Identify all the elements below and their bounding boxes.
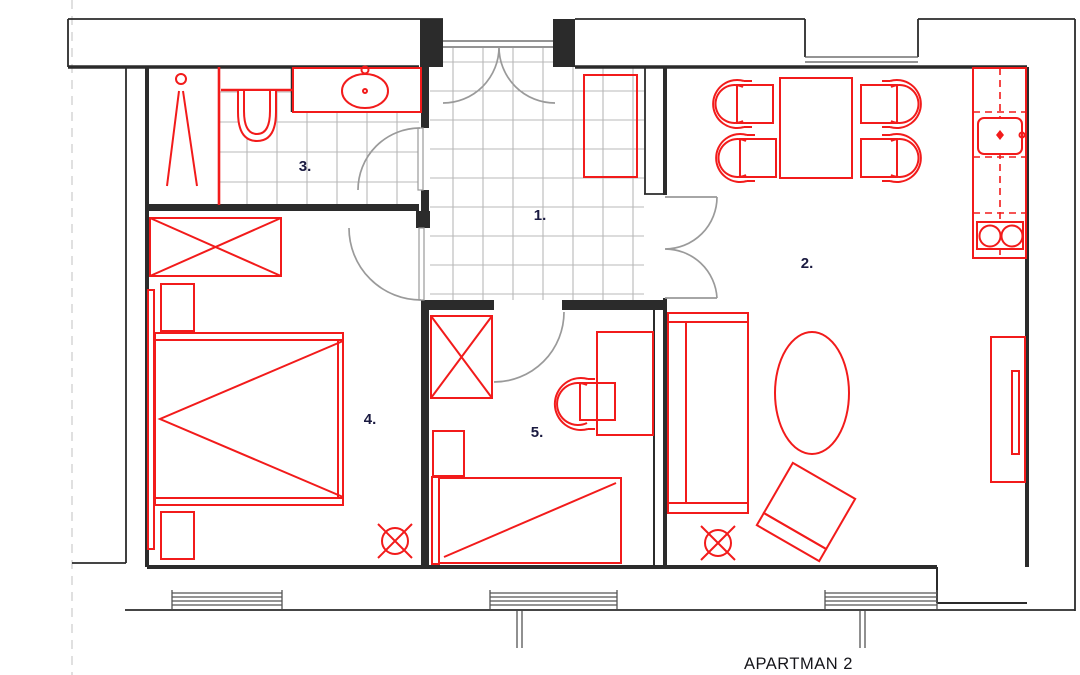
interior-walls	[147, 67, 665, 567]
dining-chair-icon	[861, 80, 921, 128]
double-bed-icon	[155, 333, 343, 505]
nightstand	[433, 431, 464, 476]
room-label-bedroom: 4.	[364, 411, 377, 428]
entry-pier-right	[553, 19, 575, 67]
tv-cabinet-icon	[991, 337, 1025, 482]
kitchen-counter	[973, 68, 1026, 258]
entry-pier-left	[420, 19, 443, 67]
bedroom-smallroom-wall	[421, 300, 429, 567]
stove-icon	[977, 222, 1023, 249]
shower-icon	[167, 74, 197, 186]
nightstand	[161, 284, 194, 331]
coffee-table-icon	[775, 332, 849, 454]
window-living-room	[825, 590, 937, 609]
hall-furniture	[584, 75, 637, 177]
dining-chair-icon	[861, 134, 921, 182]
wardrobe-icon	[150, 218, 281, 276]
room-label-living-room: 2.	[801, 255, 814, 272]
hall-living-wall	[644, 67, 665, 194]
hall-smallroom-wall-right	[562, 300, 664, 310]
sofa-icon	[668, 313, 748, 513]
ceiling-light-icon	[378, 524, 412, 558]
desk-chair-icon	[555, 378, 615, 430]
bathroom-fixtures	[167, 67, 421, 206]
bathroom-door-swing	[358, 128, 423, 190]
toilet-icon	[238, 90, 276, 141]
bathroom-bottom-wall	[147, 204, 419, 211]
top-window	[805, 57, 918, 62]
hall-tile-grid	[430, 48, 644, 300]
wall-step	[416, 211, 430, 228]
hall-bathroom-wall	[421, 67, 429, 128]
armchair-icon	[757, 463, 855, 561]
entrance-door-swing	[443, 47, 555, 103]
sink-icon	[978, 118, 1025, 154]
room-label-bathroom: 3.	[299, 158, 312, 175]
washbasin-icon	[293, 67, 421, 113]
room-label-small-room: 5.	[531, 424, 544, 441]
window-bedroom	[172, 590, 282, 609]
nightstand	[161, 512, 194, 559]
hall-cabinet-icon	[584, 75, 637, 177]
window-small-room	[490, 590, 617, 609]
small-room-door-swing	[494, 312, 564, 382]
entry-threshold	[443, 41, 553, 47]
wall-section-marks	[517, 611, 865, 648]
dining-chair-icon	[716, 134, 776, 182]
bedroom-door-swing	[349, 228, 424, 300]
dining-chair-icon	[713, 80, 773, 128]
hall-smallroom-wall-left	[421, 300, 494, 310]
toilet-ledge	[220, 68, 292, 89]
ceiling-light-icon	[701, 526, 735, 560]
single-bed-icon	[432, 477, 621, 564]
dining-table-icon	[780, 78, 852, 178]
bedroom-furniture	[148, 218, 412, 559]
wardrobe-icon	[431, 316, 492, 398]
headboard	[148, 290, 154, 549]
floor-plan: 1. 2. 3. 4. 5. APARTMAN 2	[0, 0, 1080, 675]
plan-title: APARTMAN 2	[744, 655, 853, 673]
living-room-double-door-swing	[665, 197, 717, 298]
floor-plan-drawing: 1. 2. 3. 4. 5. APARTMAN 2	[0, 0, 1080, 675]
living-room-furniture	[668, 68, 1026, 561]
room-label-hall: 1.	[534, 207, 547, 224]
